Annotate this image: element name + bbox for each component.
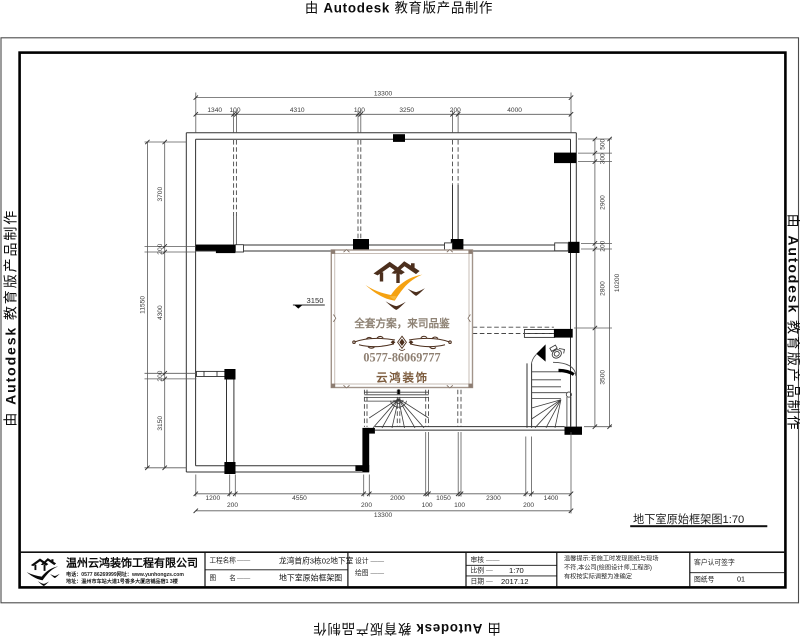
svg-text:1340: 1340 <box>207 107 222 114</box>
svg-text:01: 01 <box>737 575 745 584</box>
svg-text:设计 ——: 设计 —— <box>355 556 384 565</box>
svg-text:100: 100 <box>454 502 465 509</box>
svg-text:温州云鸿装饰工程有限公司: 温州云鸿装饰工程有限公司 <box>66 556 198 570</box>
svg-text:地址：温州市车站大道1号香多大厦店铺品宿1 3楼: 地址：温州市车站大道1号香多大厦店铺品宿1 3楼 <box>66 578 179 585</box>
svg-text:客户认可签字: 客户认可签字 <box>694 557 735 566</box>
svg-text:500: 500 <box>600 138 607 149</box>
svg-text:13300: 13300 <box>374 90 393 97</box>
svg-text:不符,本公司(绘图设计师,工程部): 不符,本公司(绘图设计师,工程部) <box>564 563 652 571</box>
svg-text:有权按实际调整为准确定: 有权按实际调整为准确定 <box>564 572 632 580</box>
svg-text:——: —— <box>237 557 251 564</box>
svg-text:100: 100 <box>229 107 240 114</box>
svg-text:3700: 3700 <box>157 187 164 202</box>
svg-text:200: 200 <box>600 240 607 251</box>
svg-text:4550: 4550 <box>292 495 307 502</box>
svg-text:1050: 1050 <box>436 495 451 502</box>
svg-text:200: 200 <box>361 502 372 509</box>
svg-text:3500: 3500 <box>600 370 607 385</box>
svg-text:地下室原始框架图1:70: 地下室原始框架图1:70 <box>633 512 744 526</box>
svg-text:11550: 11550 <box>140 296 147 314</box>
svg-text:100: 100 <box>422 502 433 509</box>
svg-text:3250: 3250 <box>399 107 414 114</box>
svg-text:图 名: 图 名 <box>210 573 236 582</box>
svg-text:2800: 2800 <box>600 281 607 296</box>
svg-text:0577-86069777: 0577-86069777 <box>363 350 440 364</box>
svg-text:地下室原始框架图: 地下室原始框架图 <box>279 572 342 582</box>
svg-text:13300: 13300 <box>374 512 393 519</box>
svg-text:温馨提示:若施工时发现图纸与现场: 温馨提示:若施工时发现图纸与现场 <box>564 554 659 562</box>
svg-text:2900: 2900 <box>600 195 607 210</box>
svg-text:3150: 3150 <box>157 416 164 431</box>
svg-text:200: 200 <box>157 370 164 381</box>
svg-text:4000: 4000 <box>507 107 522 114</box>
svg-text:200: 200 <box>450 107 461 114</box>
svg-text:1400: 1400 <box>544 495 559 502</box>
svg-text:电话：0577 86269999网址：www.yunhong: 电话：0577 86269999网址：www.yunhongzs.com <box>66 571 184 578</box>
svg-text:3150: 3150 <box>307 296 324 305</box>
svg-text:绘图 ——: 绘图 —— <box>355 568 384 577</box>
svg-text:龙湾首府3栋02地下室: 龙湾首府3栋02地下室 <box>279 555 354 565</box>
svg-text:200: 200 <box>157 243 164 254</box>
svg-text:2300: 2300 <box>486 495 501 502</box>
svg-text:200: 200 <box>227 502 238 509</box>
svg-text:200: 200 <box>523 502 534 509</box>
svg-text:全套方案，来司品鉴: 全套方案，来司品鉴 <box>353 317 450 330</box>
svg-text:日期 —: 日期 — <box>471 578 493 586</box>
svg-text:4300: 4300 <box>157 305 164 320</box>
svg-text:4310: 4310 <box>290 107 305 114</box>
svg-text:由 Autodesk 教育版产品制作: 由 Autodesk 教育版产品制作 <box>313 621 501 636</box>
svg-text:1200: 1200 <box>205 495 220 502</box>
svg-text:2017.12: 2017.12 <box>501 577 528 586</box>
svg-text:2000: 2000 <box>390 495 405 502</box>
svg-text:比例 —: 比例 — <box>471 566 493 575</box>
svg-text:由 Autodesk 教育版产品制作: 由 Autodesk 教育版产品制作 <box>786 214 800 432</box>
svg-text:图纸号: 图纸号 <box>694 575 715 584</box>
svg-text:10200: 10200 <box>614 273 621 292</box>
svg-text:300: 300 <box>600 153 607 164</box>
svg-text:——: —— <box>237 575 251 582</box>
svg-text:工程名称: 工程名称 <box>210 555 237 564</box>
svg-text:由 Autodesk 教育版产品制作: 由 Autodesk 教育版产品制作 <box>2 209 18 427</box>
svg-text:1:70: 1:70 <box>509 566 524 575</box>
svg-text:审核 ——: 审核 —— <box>471 555 500 564</box>
svg-text:由 Autodesk 教育版产品制作: 由 Autodesk 教育版产品制作 <box>305 1 493 16</box>
svg-text:云鸿装饰: 云鸿装饰 <box>376 370 429 384</box>
svg-text:100: 100 <box>354 107 365 114</box>
